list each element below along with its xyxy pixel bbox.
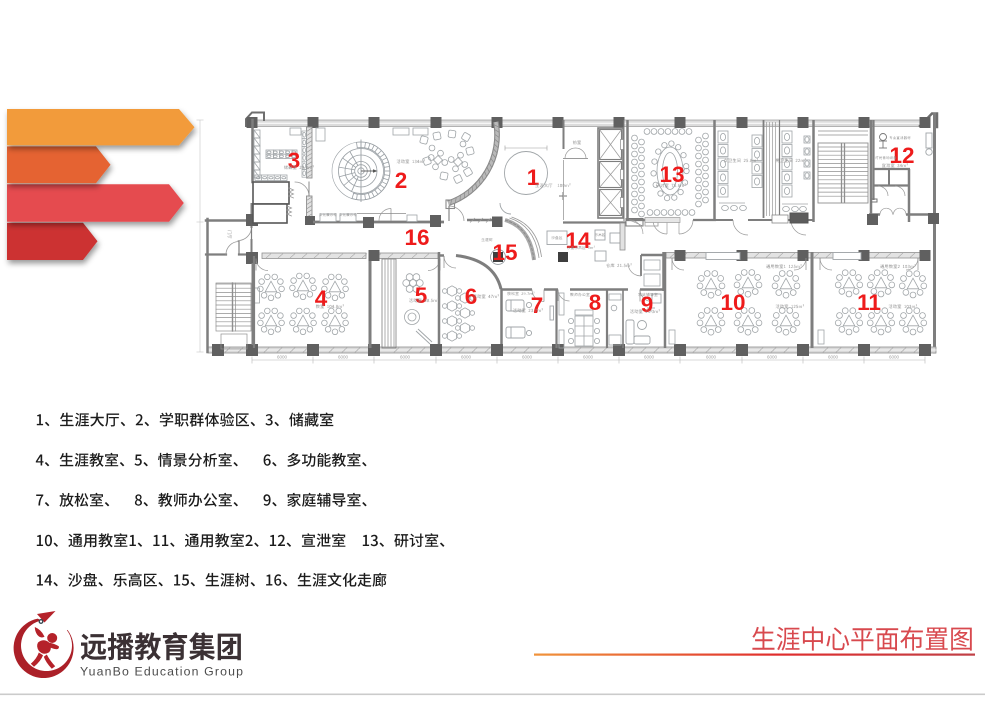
svg-text:6000: 6000	[583, 355, 594, 360]
svg-text:5: 5	[415, 283, 428, 308]
svg-text:10: 10	[720, 290, 745, 315]
svg-text:6000: 6000	[767, 355, 778, 360]
svg-text:2: 2	[395, 168, 408, 193]
svg-text:6000: 6000	[644, 355, 655, 360]
svg-text:8: 8	[589, 290, 602, 315]
svg-text:6000: 6000	[706, 355, 717, 360]
svg-text:6000: 6000	[338, 355, 349, 360]
svg-text:11: 11	[857, 290, 881, 315]
svg-text:6000: 6000	[400, 355, 411, 360]
svg-text:14: 14	[565, 228, 591, 253]
svg-text:6000: 6000	[828, 355, 839, 360]
svg-text:12: 12	[889, 143, 914, 168]
svg-text:6000: 6000	[522, 355, 533, 360]
svg-text:6000: 6000	[277, 355, 288, 360]
svg-text:6000: 6000	[889, 355, 900, 360]
svg-text:3: 3	[288, 148, 301, 173]
svg-text:7: 7	[531, 293, 544, 318]
svg-text:16: 16	[404, 225, 429, 250]
svg-text:YuanBo Education Group: YuanBo Education Group	[80, 665, 244, 679]
svg-text:13: 13	[659, 162, 684, 187]
svg-text:6000: 6000	[461, 355, 472, 360]
svg-text:15: 15	[492, 240, 517, 265]
